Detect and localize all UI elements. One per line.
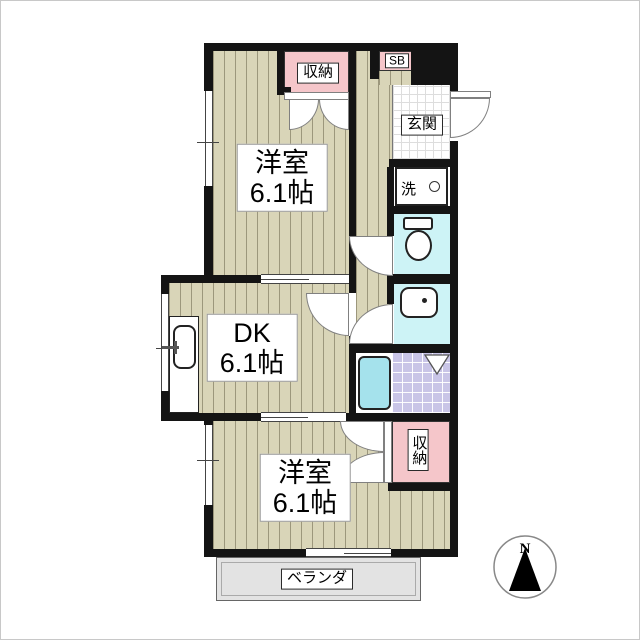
window xyxy=(205,91,213,186)
window-tick xyxy=(197,460,219,461)
bathtub xyxy=(358,356,391,410)
wall xyxy=(387,167,394,236)
floorplan: 洋室 6.1帖 DK 6.1帖 洋室 6.1帖 収納 SB 玄関 洗 収納 ベラ… xyxy=(0,0,640,640)
window xyxy=(205,425,213,505)
wall xyxy=(346,413,458,421)
wall xyxy=(349,344,458,353)
bath-door-marker xyxy=(424,354,450,376)
washbasin-drain xyxy=(422,298,427,303)
room-label-western-top: 洋室 6.1帖 xyxy=(237,144,328,212)
room-name: 洋室 xyxy=(250,148,315,178)
wall xyxy=(387,284,394,304)
toilet-tank xyxy=(403,217,433,230)
laundry-label: 洗 xyxy=(401,178,416,199)
wall xyxy=(387,206,458,214)
compass: N xyxy=(473,525,577,609)
wall xyxy=(388,483,458,491)
wall xyxy=(204,549,306,557)
closet-bottom-label: 収納 xyxy=(408,429,429,471)
wall xyxy=(387,274,458,284)
balcony-sliding-window xyxy=(306,548,391,557)
sliding-door-line xyxy=(344,553,391,554)
wall xyxy=(161,275,169,294)
entrance-door-leaf xyxy=(450,91,491,98)
room-name: 洋室 xyxy=(273,458,338,488)
wall xyxy=(161,275,261,283)
closet-bottom-door-leaf xyxy=(384,421,392,483)
room-label-western-bottom: 洋室 6.1帖 xyxy=(260,454,351,522)
wall xyxy=(391,549,458,557)
room-size: 6.1帖 xyxy=(220,348,285,378)
compass-north-label: N xyxy=(520,541,531,557)
entrance-step-line xyxy=(392,85,393,159)
sliding-door xyxy=(261,412,346,422)
kitchen-faucet-bar xyxy=(174,341,177,354)
sliding-door-line xyxy=(261,279,309,280)
wall xyxy=(204,186,213,283)
window-tick xyxy=(197,142,219,143)
floor-under-shoebox xyxy=(379,71,414,85)
wall xyxy=(389,159,458,167)
sliding-door-line xyxy=(261,417,308,418)
room-label-dk: DK 6.1帖 xyxy=(207,314,298,382)
washbasin-sink xyxy=(400,287,438,318)
entrance-door-arc xyxy=(450,98,490,138)
laundry-circle-icon xyxy=(429,181,440,192)
shoebox-label: SB xyxy=(385,53,409,68)
wall xyxy=(204,43,213,91)
entrance-label: 玄関 xyxy=(401,115,443,136)
wall xyxy=(204,413,213,425)
room-name: DK xyxy=(220,318,285,348)
wall xyxy=(370,51,379,79)
wall xyxy=(411,43,458,85)
closet-top-label: 収納 xyxy=(297,63,339,84)
veranda-label: ベランダ xyxy=(281,569,353,590)
room-size: 6.1帖 xyxy=(273,488,338,518)
sliding-door xyxy=(261,274,349,284)
toilet-bowl xyxy=(405,230,432,261)
room-size: 6.1帖 xyxy=(250,178,315,208)
window xyxy=(161,294,169,391)
